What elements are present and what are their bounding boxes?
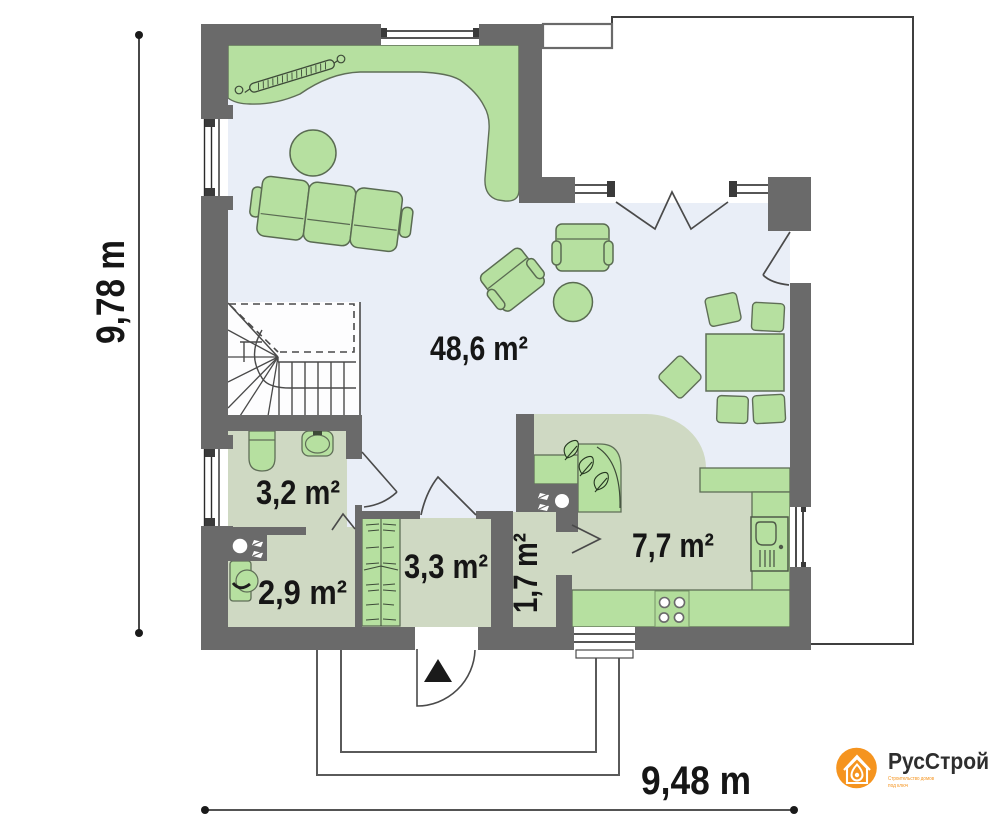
- svg-text:под ключ: под ключ: [888, 783, 908, 789]
- svg-text:9,48 m: 9,48 m: [641, 759, 751, 803]
- svg-text:48,6 m²: 48,6 m²: [430, 330, 528, 368]
- svg-text:3,2 m²: 3,2 m²: [256, 474, 340, 512]
- svg-text:9,78 m: 9,78 m: [89, 240, 133, 344]
- svg-text:Строительство домов: Строительство домов: [888, 776, 934, 782]
- svg-text:РусСтрой: РусСтрой: [888, 748, 989, 774]
- svg-text:1,7 m²: 1,7 m²: [507, 533, 545, 613]
- svg-text:2,9 m²: 2,9 m²: [258, 574, 347, 612]
- svg-text:7,7 m²: 7,7 m²: [632, 527, 714, 565]
- svg-text:3,3 m²: 3,3 m²: [404, 548, 488, 586]
